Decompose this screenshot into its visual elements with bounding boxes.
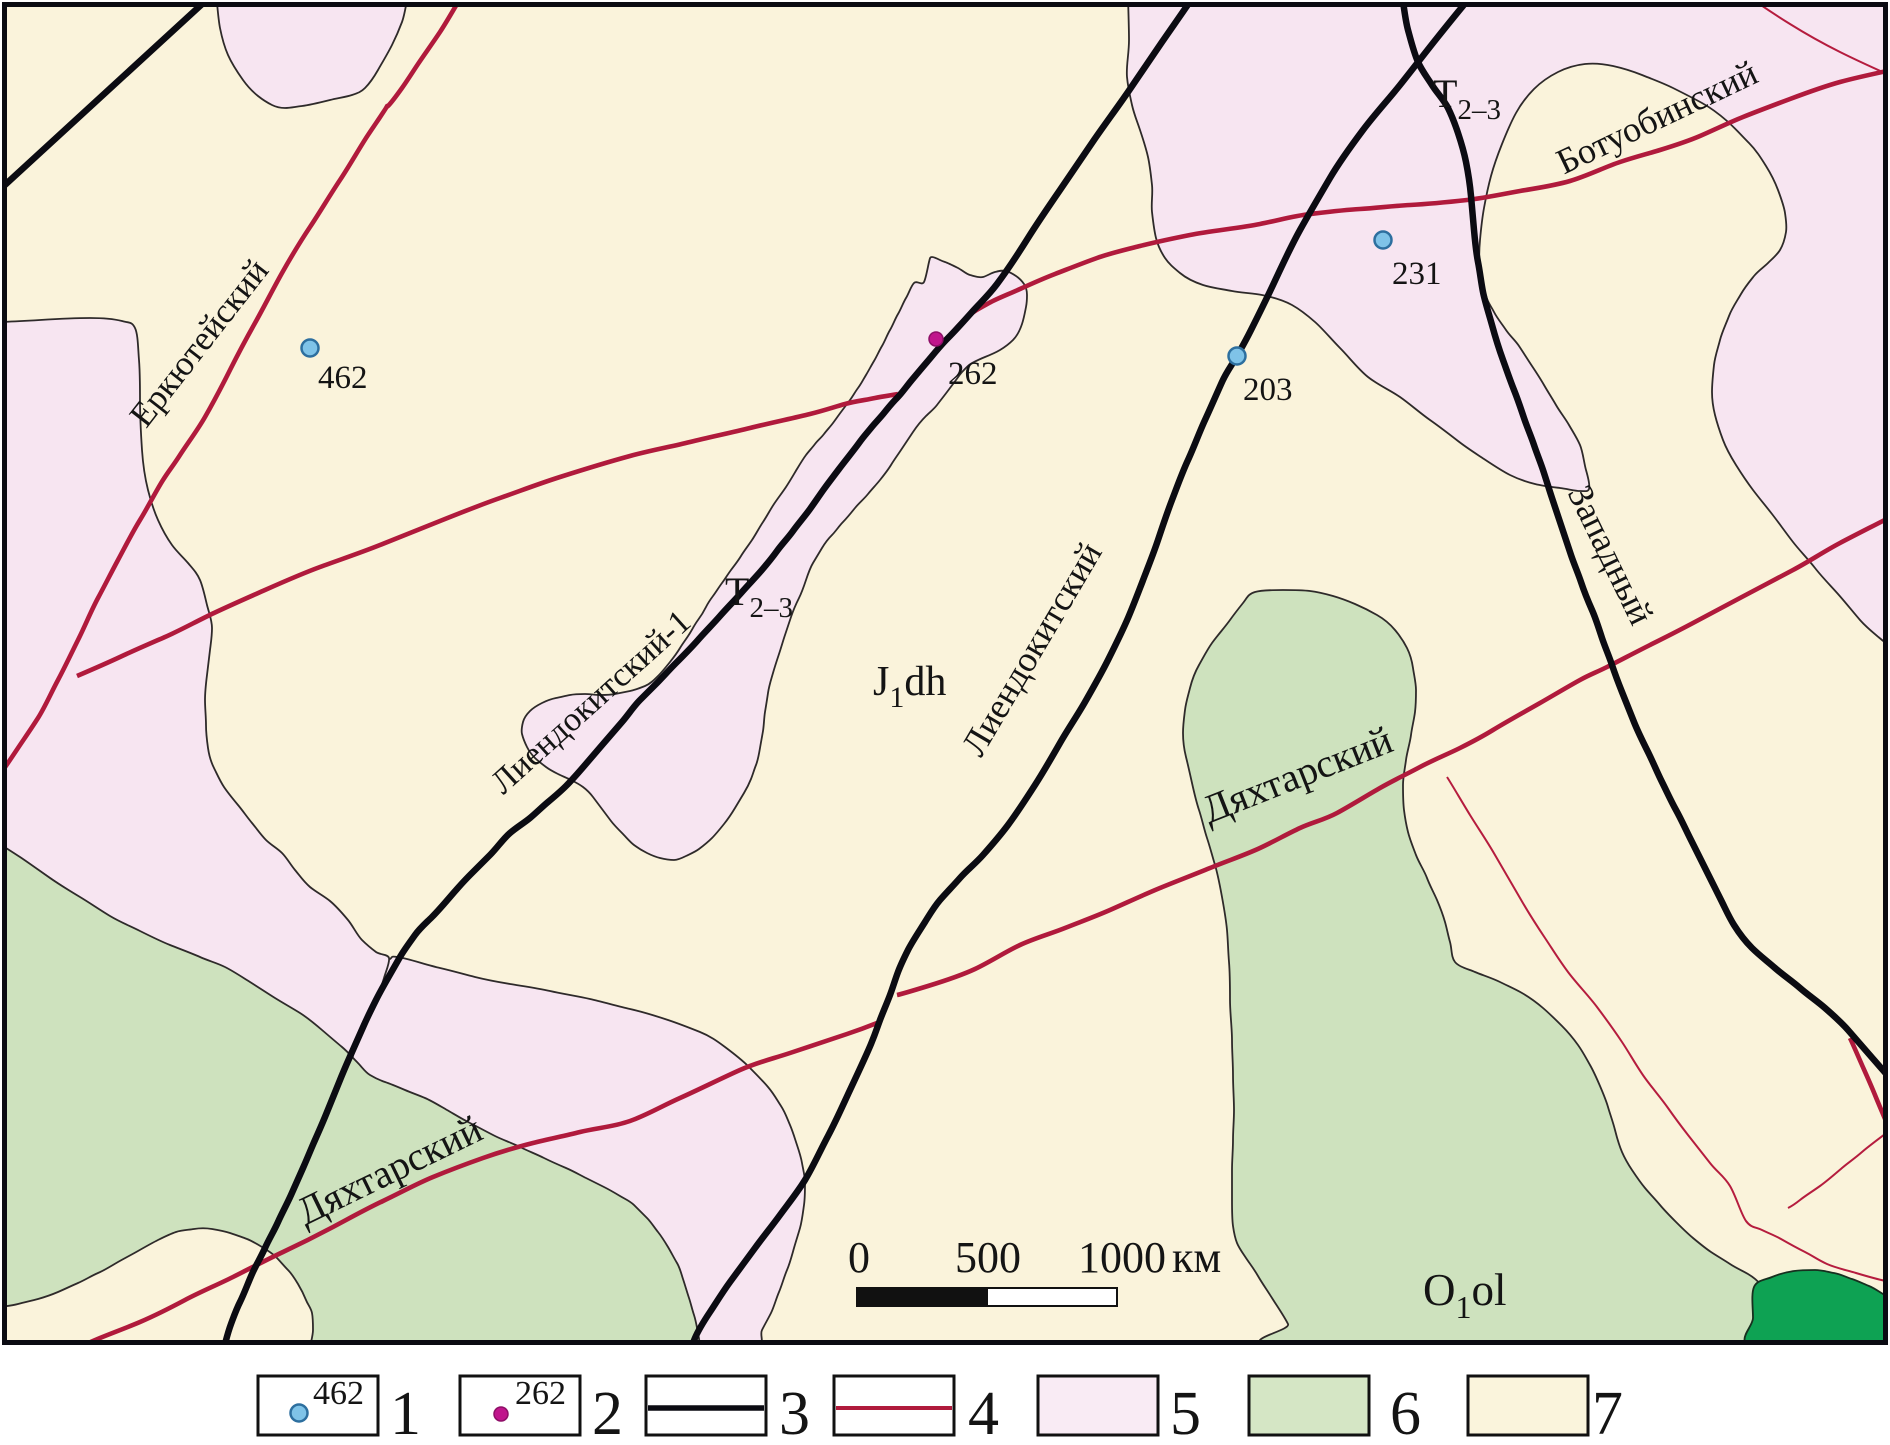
svg-text:5: 5: [1170, 1380, 1201, 1445]
svg-text:1: 1: [390, 1380, 421, 1445]
svg-text:7: 7: [1592, 1380, 1623, 1445]
svg-text:203: 203: [1243, 372, 1293, 408]
svg-text:4: 4: [968, 1380, 999, 1445]
svg-text:262: 262: [948, 356, 998, 392]
svg-text:6: 6: [1390, 1380, 1421, 1445]
svg-text:500: 500: [955, 1233, 1021, 1282]
svg-text:231: 231: [1392, 256, 1442, 292]
svg-text:462: 462: [313, 1375, 364, 1412]
svg-text:км: км: [1172, 1233, 1221, 1282]
svg-text:462: 462: [318, 360, 368, 396]
svg-text:1000: 1000: [1078, 1233, 1166, 1282]
svg-text:3: 3: [779, 1380, 810, 1445]
svg-text:2: 2: [592, 1380, 623, 1445]
svg-text:262: 262: [515, 1375, 566, 1412]
svg-text:0: 0: [848, 1233, 870, 1282]
